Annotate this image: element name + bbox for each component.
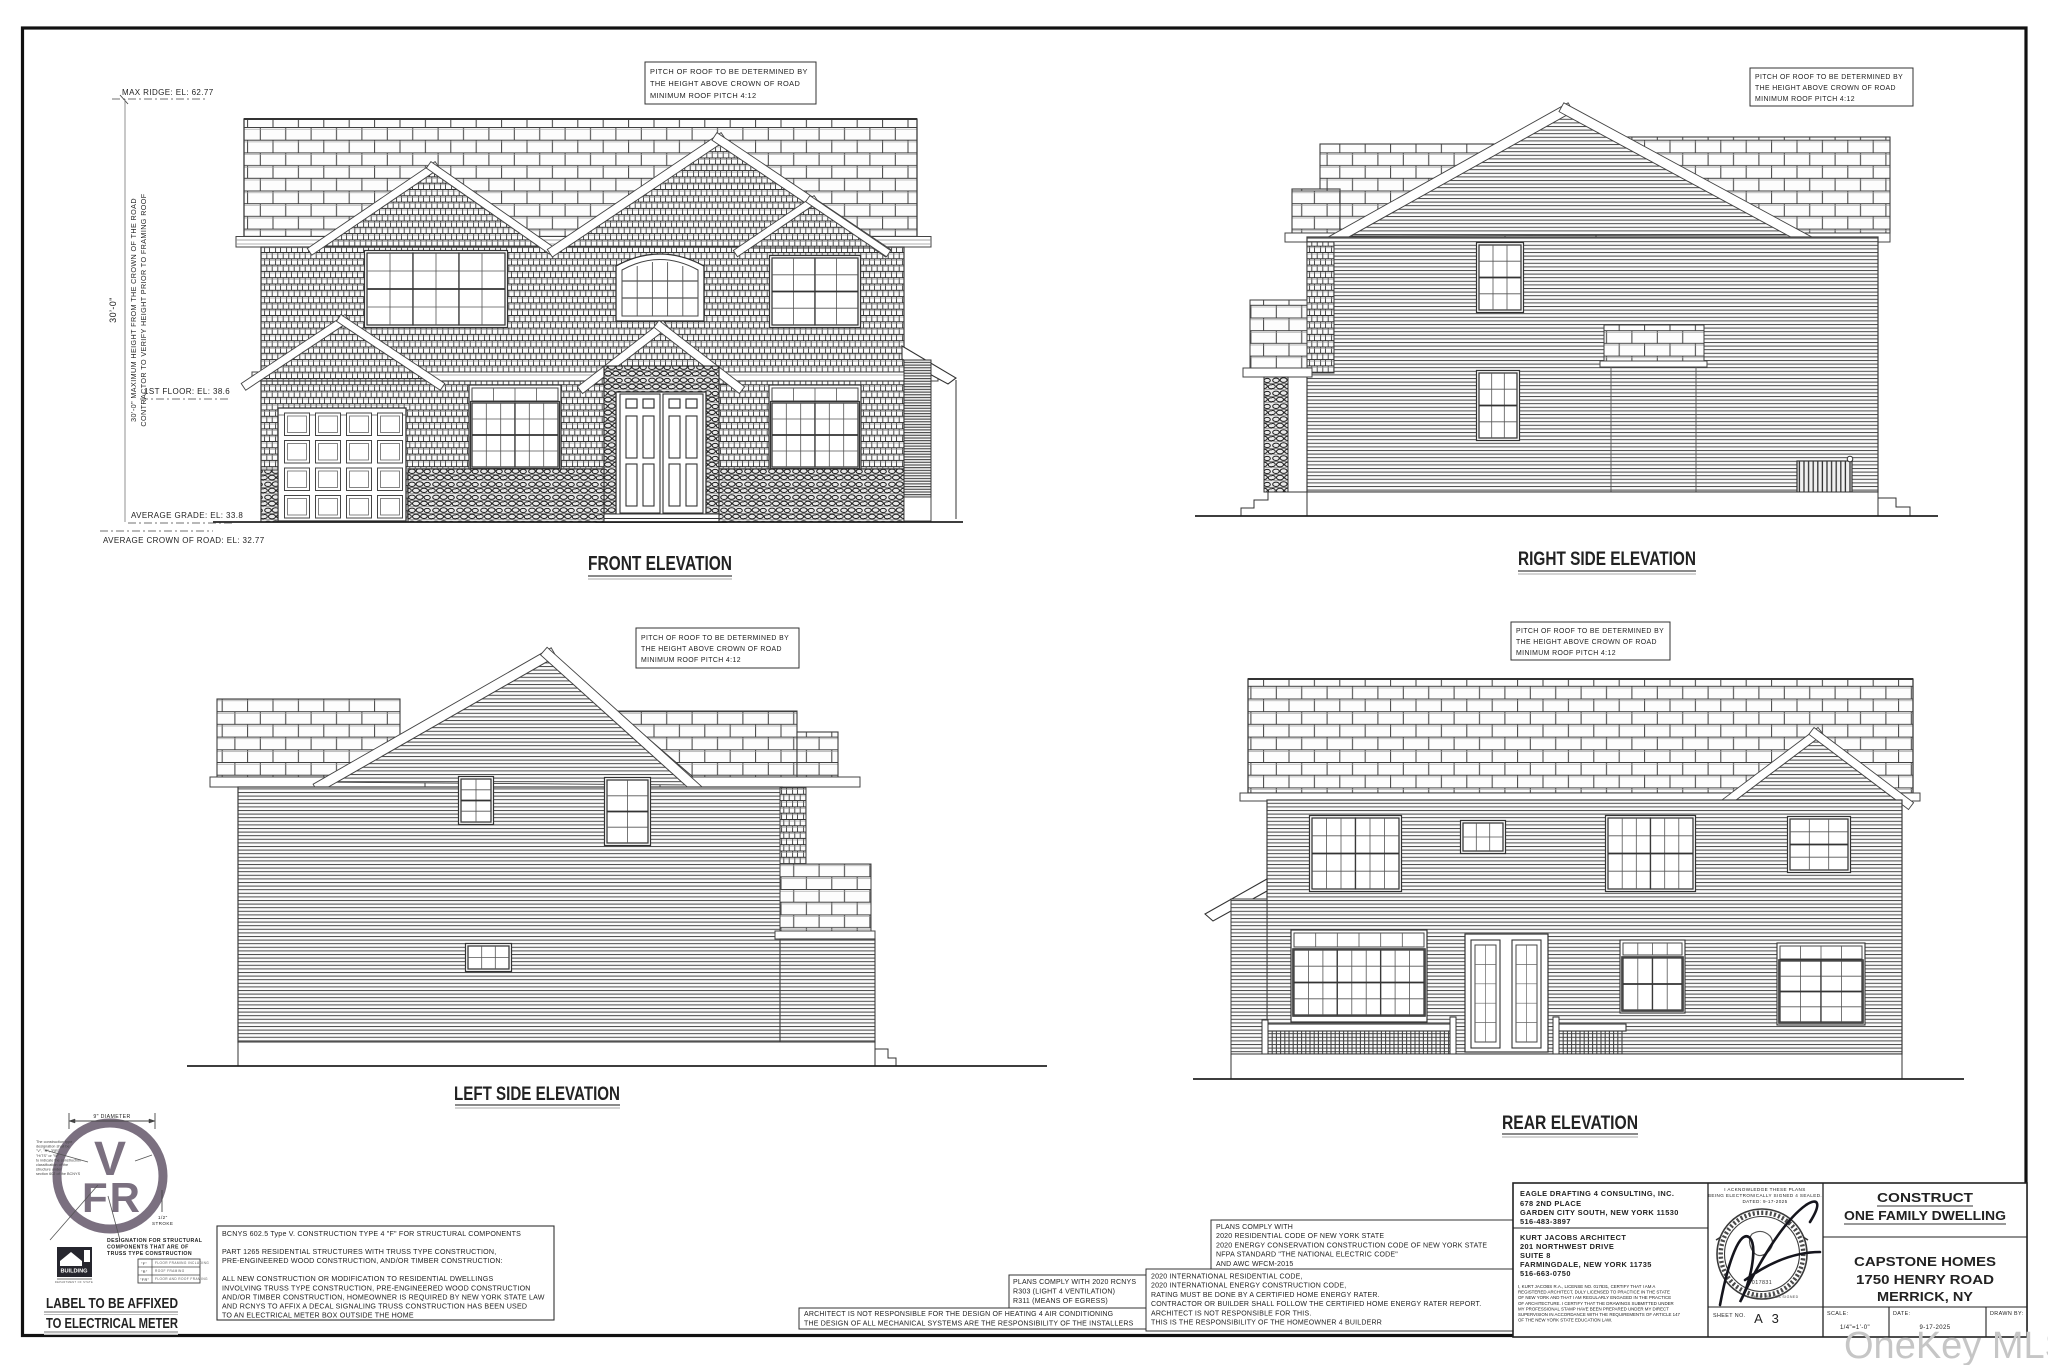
svg-text:LEFT SIDE ELEVATION: LEFT SIDE ELEVATION — [454, 1084, 620, 1105]
svg-text:BEING ELECTRONICALLY SIGNED 4: BEING ELECTRONICALLY SIGNED 4 SEALED. — [1708, 1193, 1822, 1198]
svg-text:AND/OR TIMBER CONSTRUCTION, HO: AND/OR TIMBER CONSTRUCTION, HOMEOWNER IS… — [222, 1293, 545, 1301]
svg-text:COMPONENTS THAT ARE OF: COMPONENTS THAT ARE OF — [107, 1245, 189, 1251]
svg-text:PITCH OF ROOF TO BE DETERMINED: PITCH OF ROOF TO BE DETERMINED BY — [650, 67, 808, 76]
svg-text:REAR ELEVATION: REAR ELEVATION — [1502, 1113, 1638, 1134]
svg-text:BCNYS 602.5 Type V. CONSTRUCTI: BCNYS 602.5 Type V. CONSTRUCTION TYPE 4 … — [222, 1230, 521, 1238]
svg-text:DATED: 9-17-2025: DATED: 9-17-2025 — [1742, 1199, 1787, 1204]
svg-text:"V", "R", "RR",: "V", "R", "RR", — [36, 1149, 60, 1153]
svg-text:AVERAGE CROWN OF ROAD: EL: 32.: AVERAGE CROWN OF ROAD: EL: 32.77 — [103, 536, 265, 545]
svg-text:THE HEIGHT ABOVE CROWN OF ROAD: THE HEIGHT ABOVE CROWN OF ROAD — [650, 79, 800, 88]
svg-text:30’-0": 30’-0" — [108, 297, 118, 323]
svg-text:MINIMUM ROOF PITCH 4:12: MINIMUM ROOF PITCH 4:12 — [641, 657, 741, 664]
svg-text:SCALE:: SCALE: — [1827, 1311, 1849, 1317]
svg-text:TRUSS TYPE CONSTRUCTION: TRUSS TYPE CONSTRUCTION — [107, 1251, 192, 1257]
svg-text:017831: 017831 — [1752, 1280, 1772, 1286]
svg-text:PITCH OF ROOF TO BE DETERMINED: PITCH OF ROOF TO BE DETERMINED BY — [641, 635, 789, 642]
svg-text:DEPARTMENT OF STATE: DEPARTMENT OF STATE — [55, 1280, 93, 1284]
svg-text:ARCHITECT IS NOT RESPONSIBLE F: ARCHITECT IS NOT RESPONSIBLE FOR THE DES… — [804, 1311, 1113, 1318]
svg-text:TO AN ELECTRICAL METER BOX OUT: TO AN ELECTRICAL METER BOX OUTSIDE THE H… — [222, 1312, 414, 1320]
svg-text:FLOOR FRAMING INCLUDING: FLOOR FRAMING INCLUDING — [155, 1261, 209, 1265]
svg-text:MINIMUM ROOF PITCH 4:12: MINIMUM ROOF PITCH 4:12 — [1755, 96, 1855, 103]
svg-text:MY PROFESSIONAL STAMP HAVE BEE: MY PROFESSIONAL STAMP HAVE BEEN PREPARED… — [1518, 1306, 1669, 1311]
svg-text:to indicate the construction: to indicate the construction — [36, 1158, 81, 1162]
svg-text:SHEET NO.: SHEET NO. — [1713, 1313, 1746, 1319]
svg-text:section 602 of the BCNYS: section 602 of the BCNYS — [36, 1172, 81, 1176]
svg-text:CONTRACTOR OR BUILDER SHALL FO: CONTRACTOR OR BUILDER SHALL FOLLOW THE C… — [1151, 1301, 1481, 1308]
svg-text:LABEL TO BE AFFIXED: LABEL TO BE AFFIXED — [46, 1296, 178, 1312]
svg-text:"R": "R" — [141, 1270, 148, 1274]
svg-text:EAGLE DRAFTING 4 CONSULTING, I: EAGLE DRAFTING 4 CONSULTING, INC. — [1520, 1189, 1674, 1198]
svg-text:THE HEIGHT ABOVE CROWN OF ROAD: THE HEIGHT ABOVE CROWN OF ROAD — [1755, 85, 1896, 92]
svg-text:NFPA STANDARD "THE NATIONAL EL: NFPA STANDARD "THE NATIONAL ELECTRIC COD… — [1216, 1252, 1398, 1259]
svg-text:516-483-3897: 516-483-3897 — [1520, 1217, 1571, 1226]
svg-text:DATE:: DATE: — [1893, 1311, 1910, 1317]
svg-text:"H/TS" or "W": "H/TS" or "W" — [36, 1154, 60, 1158]
svg-text:OF THE NEW YORK STATE EDUCATIO: OF THE NEW YORK STATE EDUCATION LAW. — [1518, 1318, 1612, 1323]
svg-text:ALL NEW CONSTRUCTION OR MODIFI: ALL NEW CONSTRUCTION OR MODIFICATION TO … — [222, 1275, 493, 1283]
svg-text:FLOOR AND ROOF FRAMING: FLOOR AND ROOF FRAMING — [155, 1277, 208, 1281]
svg-text:PART 1265 RESIDENTIAL STRUCTUR: PART 1265 RESIDENTIAL STRUCTURES WITH TR… — [222, 1248, 496, 1256]
svg-text:CONSTRUCT: CONSTRUCT — [1877, 1190, 1973, 1205]
svg-text:*T VALID UNLESS SIGNED: *T VALID UNLESS SIGNED — [1745, 1295, 1799, 1299]
svg-text:201 NORTHWEST DRIVE: 201 NORTHWEST DRIVE — [1520, 1242, 1614, 1251]
svg-text:THE DESIGN OF ALL MECHANICAL S: THE DESIGN OF ALL MECHANICAL SYSTEMS ARE… — [804, 1321, 1134, 1328]
svg-text:FARMINGDALE, NEW YORK 11735: FARMINGDALE, NEW YORK 11735 — [1520, 1260, 1652, 1269]
svg-text:"F": "F" — [141, 1262, 147, 1266]
svg-text:ROOF FRAMING: ROOF FRAMING — [155, 1269, 185, 1273]
svg-text:MINIMUM ROOF PITCH 4:12: MINIMUM ROOF PITCH 4:12 — [1516, 650, 1616, 657]
svg-text:2020 INTERNATIONAL ENERGY CONS: 2020 INTERNATIONAL ENERGY CONSTRUCTION C… — [1151, 1283, 1346, 1290]
svg-text:KURT JACOBS ARCHITECT: KURT JACOBS ARCHITECT — [1520, 1233, 1626, 1242]
svg-text:DESIGNATION FOR STRUCTURAL: DESIGNATION FOR STRUCTURAL — [107, 1238, 203, 1244]
svg-text:OneKey MLS: OneKey MLS — [1844, 1325, 2048, 1365]
svg-text:THE HEIGHT ABOVE CROWN OF ROAD: THE HEIGHT ABOVE CROWN OF ROAD — [641, 646, 782, 653]
svg-text:PLANS COMPLY WITH: PLANS COMPLY WITH — [1216, 1224, 1293, 1231]
svg-text:THIS IS THE RESPONSIBILITY OF: THIS IS THE RESPONSIBILITY OF THE HOMEOW… — [1151, 1320, 1382, 1327]
svg-text:DRAWN BY:: DRAWN BY: — [1990, 1311, 2024, 1317]
svg-text:CAPSTONE HOMES: CAPSTONE HOMES — [1854, 1254, 1996, 1269]
svg-text:AVERAGE GRADE: EL: 33.8: AVERAGE GRADE: EL: 33.8 — [131, 511, 243, 520]
svg-text:2020 RESIDENTIAL CODE OF NEW Y: 2020 RESIDENTIAL CODE OF NEW YORK STATE — [1216, 1233, 1384, 1240]
svg-text:AND RCNYS TO AFFIX A DECAL SIG: AND RCNYS TO AFFIX A DECAL SIGNALING TRU… — [222, 1302, 527, 1310]
svg-text:SUITE 8: SUITE 8 — [1520, 1251, 1551, 1260]
svg-text:GARDEN CITY SOUTH, NEW YORK 11: GARDEN CITY SOUTH, NEW YORK 11530 — [1520, 1208, 1679, 1217]
svg-text:AND AWC WFCM-2015: AND AWC WFCM-2015 — [1216, 1261, 1293, 1268]
svg-text:THE HEIGHT ABOVE CROWN OF ROAD: THE HEIGHT ABOVE CROWN OF ROAD — [1516, 639, 1657, 646]
svg-text:PITCH OF ROOF TO BE DETERMINED: PITCH OF ROOF TO BE DETERMINED BY — [1516, 628, 1664, 635]
svg-text:OF NEW YORK AND THAT I AM REGU: OF NEW YORK AND THAT I AM REGULARLY ENGA… — [1518, 1295, 1671, 1300]
svg-text:678 2ND PLACE: 678 2ND PLACE — [1520, 1199, 1581, 1208]
svg-text:FR: FR — [82, 1174, 142, 1221]
svg-text:INVOLVING TRUSS TYPE CONSTRUCT: INVOLVING TRUSS TYPE CONSTRUCTION, PRE-E… — [222, 1284, 531, 1292]
svg-text:516-663-0750: 516-663-0750 — [1520, 1269, 1571, 1278]
svg-text:SUPERVISION IN ACCORDANCE WITH: SUPERVISION IN ACCORDANCE WITH THE REQUI… — [1518, 1312, 1681, 1317]
svg-text:MERRICK, NY: MERRICK, NY — [1877, 1289, 1973, 1304]
svg-text:STROKE: STROKE — [152, 1221, 173, 1226]
svg-text:REGISTERED ARCHITECT, DULY LIC: REGISTERED ARCHITECT, DULY LICENSED TO P… — [1518, 1290, 1670, 1295]
svg-text:1ST FLOOR: EL: 38.6: 1ST FLOOR: EL: 38.6 — [144, 387, 230, 396]
svg-text:1750 HENRY ROAD: 1750 HENRY ROAD — [1856, 1272, 1994, 1287]
svg-text:RATING MUST BE DONE BY A CERTI: RATING MUST BE DONE BY A CERTIFIED HOME … — [1151, 1292, 1380, 1299]
svg-text:structure under: structure under — [36, 1168, 62, 1172]
svg-text:2020 ENERGY CONSERVATION CONST: 2020 ENERGY CONSERVATION CONSTRUCTION CO… — [1216, 1242, 1487, 1249]
svg-text:The construction type: The construction type — [36, 1140, 72, 1144]
svg-text:RIGHT SIDE ELEVATION: RIGHT SIDE ELEVATION — [1518, 549, 1696, 570]
svg-text:designation shall be: designation shall be — [36, 1145, 70, 1149]
svg-text:TO ELECTRICAL METER: TO ELECTRICAL METER — [46, 1316, 178, 1332]
svg-text:MAX RIDGE: EL: 62.77: MAX RIDGE: EL: 62.77 — [122, 88, 214, 97]
svg-text:ONE FAMILY DWELLING: ONE FAMILY DWELLING — [1844, 1208, 2006, 1223]
svg-text:ARCHITECT IS NOT RESPONSIBLE F: ARCHITECT IS NOT RESPONSIBLE FOR THIS. — [1151, 1310, 1311, 1317]
svg-text:PITCH OF ROOF TO BE DETERMINED: PITCH OF ROOF TO BE DETERMINED BY — [1755, 74, 1903, 81]
svg-text:OF ARCHITECTURE. I CERTIFY THA: OF ARCHITECTURE. I CERTIFY THAT THE DRAW… — [1518, 1301, 1674, 1306]
svg-text:I ACKNOWLEDGE THESE PLANS: I ACKNOWLEDGE THESE PLANS — [1724, 1187, 1805, 1192]
svg-text:PRE-ENGINEERED WOOD CONSTRUCTI: PRE-ENGINEERED WOOD CONSTRUCTION, AND/OR… — [222, 1257, 503, 1265]
svg-text:I, KURT JACOBS R.A., LICENSE N: I, KURT JACOBS R.A., LICENSE NO. 017831,… — [1518, 1284, 1655, 1289]
svg-text:R303 (LIGHT 4 VENTILATION): R303 (LIGHT 4 VENTILATION) — [1013, 1289, 1115, 1296]
svg-text:PLANS COMPLY WITH 2020 RCNYS: PLANS COMPLY WITH 2020 RCNYS — [1013, 1279, 1136, 1286]
svg-text:R311 (MEANS OF EGRESS): R311 (MEANS OF EGRESS) — [1013, 1298, 1108, 1305]
svg-text:2020 INTERNATIONAL RESIDENTIAL: 2020 INTERNATIONAL RESIDENTIAL CODE, — [1151, 1274, 1303, 1281]
svg-text:1/2": 1/2" — [158, 1215, 168, 1220]
svg-text:FRONT ELEVATION: FRONT ELEVATION — [588, 553, 732, 575]
svg-text:"FR": "FR" — [140, 1278, 150, 1282]
svg-text:BUILDING: BUILDING — [60, 1269, 87, 1275]
svg-text:9" DIAMETER: 9" DIAMETER — [93, 1114, 130, 1120]
svg-text:30’-0" MAXIMUM HEIGHT FROM THE: 30’-0" MAXIMUM HEIGHT FROM THE CROWN OF … — [129, 198, 138, 422]
svg-text:MINIMUM ROOF PITCH 4:12: MINIMUM ROOF PITCH 4:12 — [650, 91, 757, 100]
svg-text:classification of the: classification of the — [36, 1163, 68, 1167]
svg-text:A 3: A 3 — [1754, 1311, 1782, 1326]
